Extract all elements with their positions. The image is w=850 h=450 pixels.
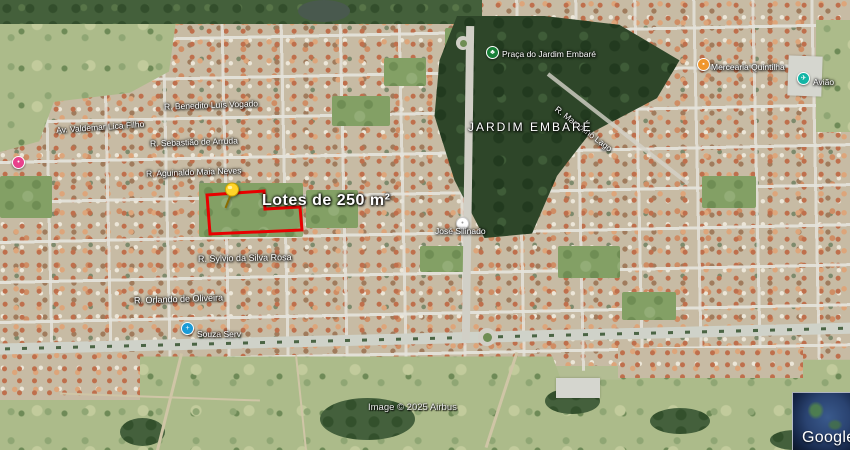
roundabout-north: [456, 36, 470, 50]
roundabout-south: [478, 328, 496, 346]
poi-label: Mercearia Quintilha: [711, 62, 785, 72]
vacant-lot-green: [622, 292, 676, 320]
tree-line: [0, 0, 482, 24]
google-logo: Google: [802, 429, 850, 447]
vacant-lot-green: [702, 176, 756, 208]
pink-poi-icon[interactable]: •: [12, 156, 25, 169]
airplane-glyph: ✈: [801, 75, 807, 82]
imagery-attribution: Image © 2025 Airbus: [368, 402, 457, 413]
park-glyph: ♣: [490, 49, 495, 56]
tree-copse: [650, 408, 710, 434]
vacant-lot-green: [332, 96, 390, 126]
park-icon[interactable]: ♣: [486, 46, 499, 59]
business-poi-icon[interactable]: +: [181, 322, 194, 335]
pink-glyph: •: [17, 159, 19, 166]
grocery-poi-icon[interactable]: ▪: [697, 58, 710, 71]
poi-label: Souza Serv: [197, 329, 241, 339]
neighborhood-label: JARDIM EMBARÉ: [468, 120, 593, 134]
street-label: R. Sylvio da Silva Rosa: [198, 252, 292, 264]
vacant-lot-green: [420, 246, 466, 272]
poi-label: Praça do Jardim Embaré: [502, 49, 596, 59]
building-roof: [556, 378, 600, 398]
vacant-lot-green: [558, 246, 620, 278]
houses-row-south: [618, 348, 803, 378]
airplane-poi-icon[interactable]: ✈: [797, 72, 810, 85]
grocery-glyph: ▪: [702, 61, 704, 68]
vacant-lot-green: [0, 176, 52, 218]
pond: [298, 0, 350, 22]
poi-label: José Silinado: [435, 226, 486, 236]
business-glyph: +: [185, 325, 189, 332]
poi-label: Avião: [813, 77, 834, 87]
google-earth-overview-inset[interactable]: Google: [792, 392, 850, 450]
lot-size-label: Lotes de 250 m²: [262, 192, 390, 210]
placemark-pin[interactable]: [220, 181, 242, 211]
satellite-map-canvas[interactable]: R. Benedito Luís Vogado Av. Valdemar Lic…: [0, 0, 850, 450]
vacant-lot-green: [384, 58, 426, 86]
